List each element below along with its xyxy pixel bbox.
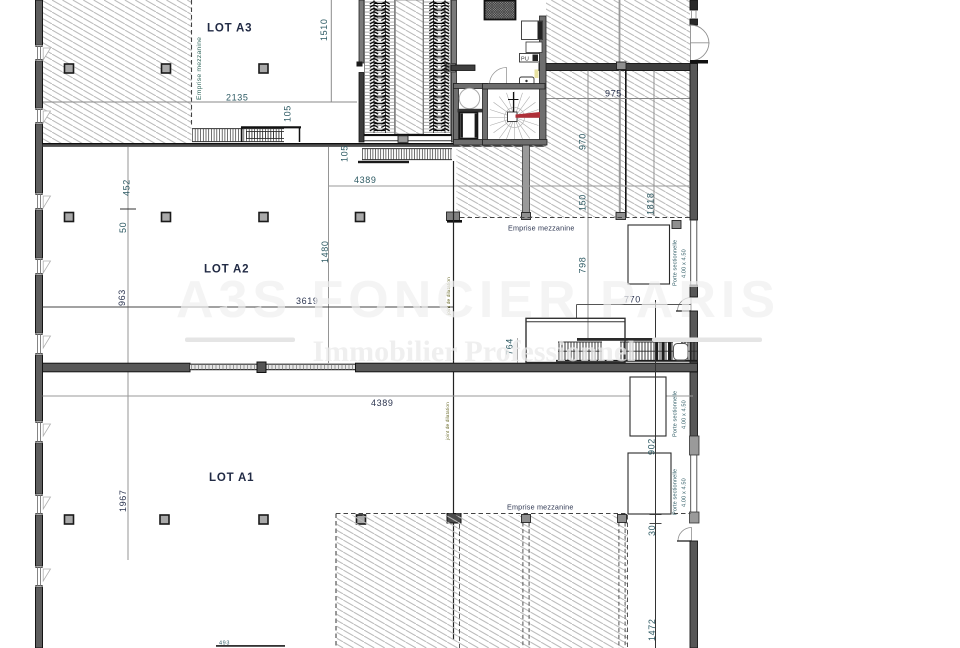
svg-text:LOT A3: LOT A3 — [207, 23, 252, 35]
svg-text:Emprise mezzanine: Emprise mezzanine — [196, 37, 203, 100]
svg-text:150: 150 — [578, 194, 588, 211]
svg-text:1472: 1472 — [647, 619, 657, 641]
svg-text:1967: 1967 — [118, 490, 128, 512]
svg-text:452: 452 — [122, 179, 132, 196]
svg-text:105: 105 — [340, 145, 350, 162]
svg-text:Porte sectionnelle: Porte sectionnelle — [673, 391, 679, 437]
svg-text:1818: 1818 — [646, 193, 656, 215]
svg-text:joint de dilatation: joint de dilatation — [445, 402, 451, 441]
svg-text:105: 105 — [283, 105, 293, 122]
svg-text:970: 970 — [578, 133, 588, 150]
svg-text:1480: 1480 — [320, 241, 330, 263]
svg-text:493: 493 — [219, 641, 230, 647]
svg-text:1510: 1510 — [319, 19, 329, 41]
svg-text:50: 50 — [118, 222, 128, 233]
svg-text:902: 902 — [647, 438, 657, 455]
svg-text:4389: 4389 — [371, 398, 393, 408]
svg-text:963: 963 — [117, 289, 127, 306]
svg-text:A3S FONCIER PARIS: A3S FONCIER PARIS — [176, 271, 780, 329]
svg-text:Emprise mezzanine: Emprise mezzanine — [507, 503, 574, 512]
svg-text:975: 975 — [605, 89, 622, 99]
svg-text:Immobilier Professionnel: Immobilier Professionnel — [312, 335, 635, 368]
svg-text:PU: PU — [521, 57, 529, 63]
svg-text:Porte sectionnelle: Porte sectionnelle — [673, 469, 679, 515]
svg-text:Emprise mezzanine: Emprise mezzanine — [508, 224, 575, 233]
svg-text:2135: 2135 — [226, 93, 248, 103]
svg-text:4.00 x 4.50: 4.00 x 4.50 — [682, 478, 688, 507]
svg-text:LOT A1: LOT A1 — [209, 472, 254, 484]
svg-text:4.00 x 4.50: 4.00 x 4.50 — [682, 400, 688, 429]
svg-text:4389: 4389 — [354, 175, 376, 185]
svg-text:30: 30 — [647, 525, 657, 536]
